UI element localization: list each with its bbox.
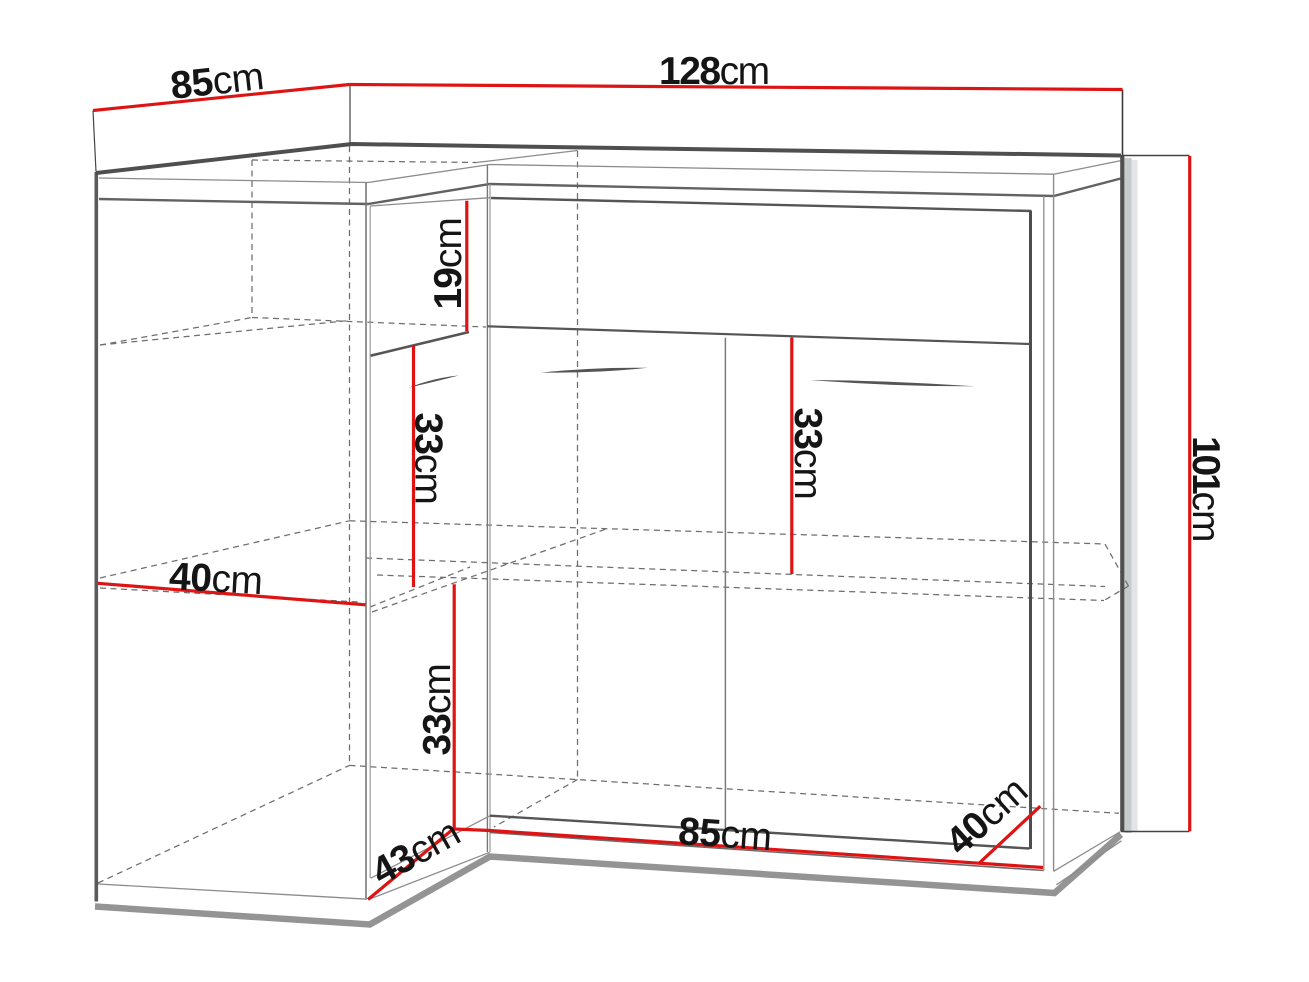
svg-text:85cm: 85cm bbox=[677, 810, 773, 859]
svg-text:19cm: 19cm bbox=[427, 218, 470, 309]
svg-text:40cm: 40cm bbox=[168, 555, 264, 603]
svg-text:33cm: 33cm bbox=[407, 413, 450, 504]
svg-text:101cm: 101cm bbox=[1184, 436, 1227, 541]
svg-text:33cm: 33cm bbox=[416, 664, 459, 755]
svg-text:128cm: 128cm bbox=[659, 50, 769, 93]
svg-text:33cm: 33cm bbox=[786, 408, 829, 499]
